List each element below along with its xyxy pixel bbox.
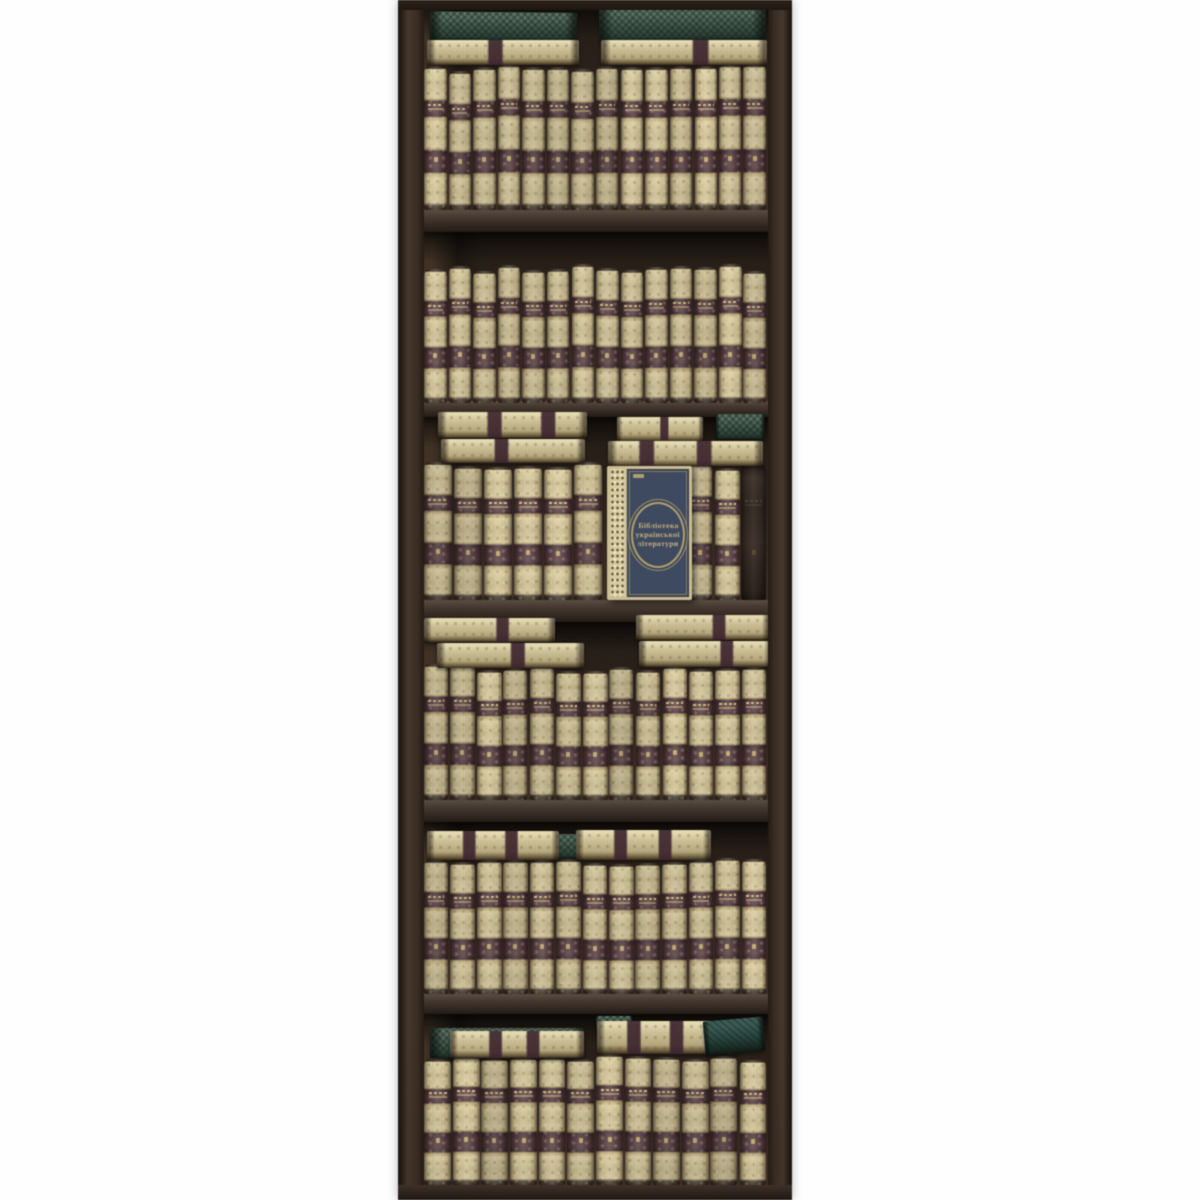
spine-volume-number <box>580 158 584 163</box>
spine-title-band-text <box>587 705 604 707</box>
book-spine <box>454 466 482 600</box>
spine-volume-number <box>513 944 517 949</box>
spine-title-band-text <box>454 897 471 899</box>
shelf-board-1 <box>420 210 770 232</box>
book-spine <box>498 64 521 210</box>
book-spine <box>715 468 740 600</box>
book-spine <box>484 467 512 600</box>
spine-title-band-text <box>673 104 688 106</box>
spine-title-band-text <box>719 894 736 896</box>
spine-title-band-text <box>549 502 568 504</box>
spine-volume-number <box>434 944 438 949</box>
book-spine <box>596 268 619 403</box>
spine-volume-number <box>586 549 590 554</box>
spine-volume-number <box>646 752 650 757</box>
spine-volume-number <box>672 945 676 950</box>
book-spine <box>547 67 570 210</box>
spine-title-band-text <box>613 898 630 900</box>
spine-title-band-text <box>575 106 590 108</box>
book-spine <box>539 1057 566 1185</box>
book-spine <box>743 64 766 210</box>
spine-title-band-text <box>489 502 508 504</box>
book-spine <box>653 1057 680 1185</box>
stacked-flat-book-gold <box>424 618 555 642</box>
spine-title-band-text <box>477 306 492 308</box>
spine-volume-number <box>458 352 462 357</box>
spine-title-band-text <box>723 301 738 303</box>
book-spine <box>694 267 717 403</box>
spine-title-band-text <box>625 105 640 107</box>
book-spine <box>645 267 668 403</box>
spine-title-band-text <box>747 306 762 308</box>
spine-title-band-text <box>624 305 639 307</box>
spine-volume-number <box>436 1138 440 1143</box>
spine-volume-number <box>526 550 530 555</box>
book-spine <box>530 860 555 994</box>
book-spine <box>530 666 555 800</box>
spine-title-band-text <box>575 301 590 303</box>
blue-cover-field: Бібліотека української літератури <box>629 471 687 595</box>
spine-volume-number <box>728 352 732 357</box>
spine-title-band-text <box>719 503 736 505</box>
spine-title-band-text <box>481 896 498 898</box>
spine-volume-number <box>703 353 707 358</box>
spine-title-band-text <box>673 302 688 304</box>
spine-title-band-text <box>543 1091 561 1093</box>
spine-volume-number <box>531 354 535 359</box>
spine-title-band-text <box>723 103 738 105</box>
spine-title-band-text <box>452 108 467 110</box>
stacked-flat-book-gold <box>639 641 772 667</box>
book-spine <box>514 466 542 600</box>
spine-volume-number <box>752 550 756 555</box>
spine-title-band-text <box>639 898 656 900</box>
spine-title-band-text <box>550 105 565 107</box>
book-spine <box>556 671 581 800</box>
title-line-2: української <box>636 531 680 538</box>
spine-volume-number <box>566 752 570 757</box>
spine-volume-number <box>550 1138 554 1143</box>
stacked-flat-book-gold <box>450 1031 584 1058</box>
spine-title-band-text <box>571 1092 589 1094</box>
book-spine <box>424 1059 451 1185</box>
spine-volume-number <box>566 944 570 949</box>
spine-title-band-text <box>649 303 664 305</box>
spine-title-band-text <box>458 502 477 504</box>
spine-title-band-text <box>714 1090 732 1092</box>
spine-title-band-text <box>666 702 683 704</box>
spine-title-band-text <box>507 703 524 705</box>
spine-title-band-text <box>599 104 614 106</box>
spine-title-band-text <box>746 702 763 704</box>
book-spine <box>670 266 693 403</box>
spine-volume-number <box>636 1137 640 1142</box>
spine-volume-number <box>487 752 491 757</box>
spine-volume-number <box>646 946 650 951</box>
book-spine <box>682 1059 709 1185</box>
spine-title-band-text <box>649 105 664 107</box>
gilt-ornament-strip <box>610 469 627 597</box>
bookcase-mural-photo: Бібліотека української літератури <box>0 0 1200 1200</box>
book-spine <box>450 862 475 994</box>
book-spine <box>477 670 502 800</box>
book-spine <box>424 269 447 403</box>
spine-volume-number <box>728 156 732 161</box>
spine-title-band-text <box>428 104 443 106</box>
spine-title-band-text <box>428 499 447 501</box>
spine-volume-number <box>752 751 756 756</box>
stacked-flat-book-gold <box>441 439 585 463</box>
book-spine <box>670 66 693 210</box>
spine-title-band-text <box>428 305 443 307</box>
spine-volume-number <box>698 550 702 555</box>
bookcase: Бібліотека української літератури <box>0 0 1200 1200</box>
top-frame-rail <box>398 0 792 10</box>
spine-volume-number <box>752 944 756 949</box>
spine-title-band-text <box>526 105 541 107</box>
stacked-flat-book-green <box>599 7 766 42</box>
spine-title-band-text <box>747 103 762 105</box>
book-spine <box>567 1059 594 1185</box>
spine-title-band-text <box>629 1090 647 1092</box>
book-spine <box>635 863 660 994</box>
book-spine <box>621 270 644 403</box>
book-spine <box>596 66 619 210</box>
spine-title-band-text <box>534 702 551 704</box>
spine-title-band-text <box>601 1089 619 1091</box>
book-spine <box>719 64 742 210</box>
spine-volume-number <box>434 750 438 755</box>
spine-title-band-text <box>579 499 598 501</box>
spine-title-band-text <box>693 896 710 898</box>
spine-title-band-text <box>481 704 498 706</box>
book-spine <box>715 668 740 800</box>
book-spine <box>453 1056 480 1185</box>
spine-volume-number <box>466 550 470 555</box>
book-spine <box>503 860 528 994</box>
spine-volume-number <box>433 353 437 358</box>
spine-volume-number <box>593 752 597 757</box>
spine-volume-number <box>693 1138 697 1143</box>
book-spine <box>742 667 767 800</box>
spine-volume-number <box>722 1137 726 1142</box>
spine-title-band-text <box>550 305 565 307</box>
spine-title-band-text <box>457 1090 475 1092</box>
spine-volume-number <box>482 157 486 162</box>
spine-title-band-text <box>454 700 471 702</box>
spine-volume-number <box>496 551 500 556</box>
book-spine <box>449 266 472 403</box>
spine-volume-number <box>620 946 624 951</box>
spine-title-band-text <box>534 896 551 898</box>
spine-title-band-text <box>686 1092 704 1094</box>
spine-volume-number <box>751 1139 755 1144</box>
spine-volume-number <box>630 354 634 359</box>
book-spine <box>715 858 740 994</box>
book-spine <box>503 668 528 800</box>
spine-volume-number <box>436 549 440 554</box>
book-spine <box>743 271 766 403</box>
spine-volume-number <box>699 752 703 757</box>
spine-title-band-text <box>719 703 736 705</box>
spine-title-band-text <box>692 500 709 502</box>
book-spine <box>740 1060 767 1185</box>
book-spine <box>498 265 521 403</box>
spine-volume-number <box>679 157 683 162</box>
book-spine <box>609 667 634 800</box>
book-spine <box>742 859 767 994</box>
spine-volume-number <box>458 159 462 164</box>
spine-volume-number <box>664 1138 668 1143</box>
stacked-flat-book-gold <box>576 830 711 860</box>
book-spine <box>710 1056 737 1185</box>
spine-title-band-text <box>526 305 541 307</box>
book-spine <box>636 670 661 800</box>
book-spine <box>547 269 570 403</box>
stacked-flat-book-gold <box>608 441 763 466</box>
spine-volume-number <box>556 353 560 358</box>
spine-title-band-text <box>613 702 630 704</box>
spine-title-band-text <box>587 898 604 900</box>
spine-volume-number <box>556 551 560 556</box>
book-spine <box>477 860 502 994</box>
book-spine <box>662 862 687 994</box>
book-spine <box>424 664 449 800</box>
book-spine <box>609 864 634 994</box>
spine-volume-number <box>434 157 438 162</box>
spine-title-band-text <box>657 1091 675 1093</box>
spine-title-band-text <box>745 500 762 502</box>
spine-volume-number <box>579 1138 583 1143</box>
spine-volume-number <box>605 157 609 162</box>
spine-volume-number <box>540 944 544 949</box>
spine-volume-number <box>507 156 511 161</box>
stacked-flat-book-gold <box>636 615 770 640</box>
spine-volume-number <box>654 353 658 358</box>
bottom-frame-rail <box>398 1185 792 1200</box>
left-frame-stile <box>398 0 424 1200</box>
spine-title-band-text <box>600 304 615 306</box>
spine-volume-number <box>725 551 729 556</box>
spine-title-band-text <box>693 704 710 706</box>
spine-volume-number <box>492 1138 496 1143</box>
stacked-flat-book-gold <box>427 831 559 860</box>
spine-title-band-text <box>501 302 516 304</box>
spine-volume-number <box>725 944 729 949</box>
book-spine <box>645 67 668 210</box>
stacked-flat-book-gold <box>438 412 587 438</box>
spine-volume-number <box>605 353 609 358</box>
spine-volume-number <box>464 1137 468 1142</box>
book-spine <box>574 462 602 600</box>
book-spine <box>424 66 447 210</box>
spine-title-band-text <box>428 700 445 702</box>
spine-volume-number <box>482 354 486 359</box>
book-spine <box>695 66 718 210</box>
spine-volume-number <box>753 156 757 161</box>
spine-volume-number <box>679 352 683 357</box>
spine-volume-number <box>593 946 597 951</box>
title-line-3: літератури <box>637 540 678 547</box>
spine-title-band-text <box>507 896 524 898</box>
right-frame-stile <box>768 0 792 1200</box>
book-spine <box>719 264 742 403</box>
book-spine <box>583 671 608 800</box>
spine-volume-number <box>699 944 703 949</box>
book-spine <box>571 69 594 210</box>
stacked-flat-book-gold <box>427 40 579 65</box>
spine-volume-number <box>507 352 511 357</box>
spine-volume-number <box>704 157 708 162</box>
book-spine <box>689 669 714 800</box>
spine-volume-number <box>513 751 517 756</box>
book-spine <box>481 1058 508 1185</box>
book-spine <box>424 462 452 600</box>
spine-volume-number <box>752 354 756 359</box>
spine-title-band-text <box>485 1092 503 1094</box>
book-spine <box>583 863 608 994</box>
book-spine <box>473 67 496 210</box>
spine-title-band-text <box>666 897 683 899</box>
book-spine <box>621 67 644 210</box>
spine-title-band-text <box>746 895 763 897</box>
title-line-1: Бібліотека <box>638 522 678 529</box>
spine-title-band-text <box>477 105 492 107</box>
spine-volume-number <box>619 751 623 756</box>
book-spine <box>522 270 545 403</box>
spine-title-band-text <box>698 303 713 305</box>
spine-volume-number <box>726 751 730 756</box>
book-spine <box>663 666 688 800</box>
book-spine <box>596 1054 623 1185</box>
book-spine <box>689 860 714 994</box>
shelf-board-4 <box>420 800 770 822</box>
spine-volume-number <box>630 157 634 162</box>
spine-title-band-text <box>428 896 445 898</box>
spine-title-band-text <box>452 302 467 304</box>
spine-title-band-text <box>560 895 577 897</box>
stacked-flat-book-green <box>430 11 577 42</box>
spine-volume-number <box>556 157 560 162</box>
spine-title-band-text <box>698 104 713 106</box>
spine-volume-number <box>655 157 659 162</box>
book-spine <box>544 467 572 600</box>
book-spine <box>522 67 545 210</box>
spine-volume-number <box>460 750 464 755</box>
spine-volume-number <box>540 750 544 755</box>
stacked-flat-book-teal <box>703 1016 766 1055</box>
spine-volume-number <box>531 157 535 162</box>
book-spine <box>424 860 449 994</box>
stacked-flat-book-gold <box>601 40 767 65</box>
spine-title-band-text <box>744 1093 762 1095</box>
spine-title-band-text <box>519 502 538 504</box>
spine-title-band-text <box>640 704 657 706</box>
book-spine <box>449 71 472 210</box>
spine-title-band-text <box>501 103 516 105</box>
spine-volume-number <box>522 1138 526 1143</box>
spine-volume-number <box>581 352 585 357</box>
corner-gilt-mark <box>633 474 644 478</box>
book-spine <box>741 464 766 600</box>
stacked-flat-book-gold <box>437 643 584 668</box>
spine-volume-number <box>608 1137 612 1142</box>
book-spine <box>625 1056 652 1185</box>
book-spine <box>556 859 581 994</box>
stacked-flat-book-green <box>716 414 764 439</box>
title-medallion: Бібліотека української літератури <box>631 502 685 568</box>
spine-volume-number <box>487 944 491 949</box>
stacked-flat-book-gold <box>617 417 703 441</box>
book-spine <box>450 664 475 800</box>
shelf-board-5 <box>420 994 770 1014</box>
book-spine <box>510 1057 537 1185</box>
spine-title-band-text <box>429 1092 447 1094</box>
book-spine <box>572 264 595 403</box>
featured-blue-book: Бібліотека української літератури <box>607 466 692 600</box>
spine-volume-number <box>461 945 465 950</box>
spine-title-band-text <box>560 705 577 707</box>
spine-title-band-text <box>514 1091 532 1093</box>
spine-volume-number <box>673 750 677 755</box>
book-spine <box>473 271 496 403</box>
